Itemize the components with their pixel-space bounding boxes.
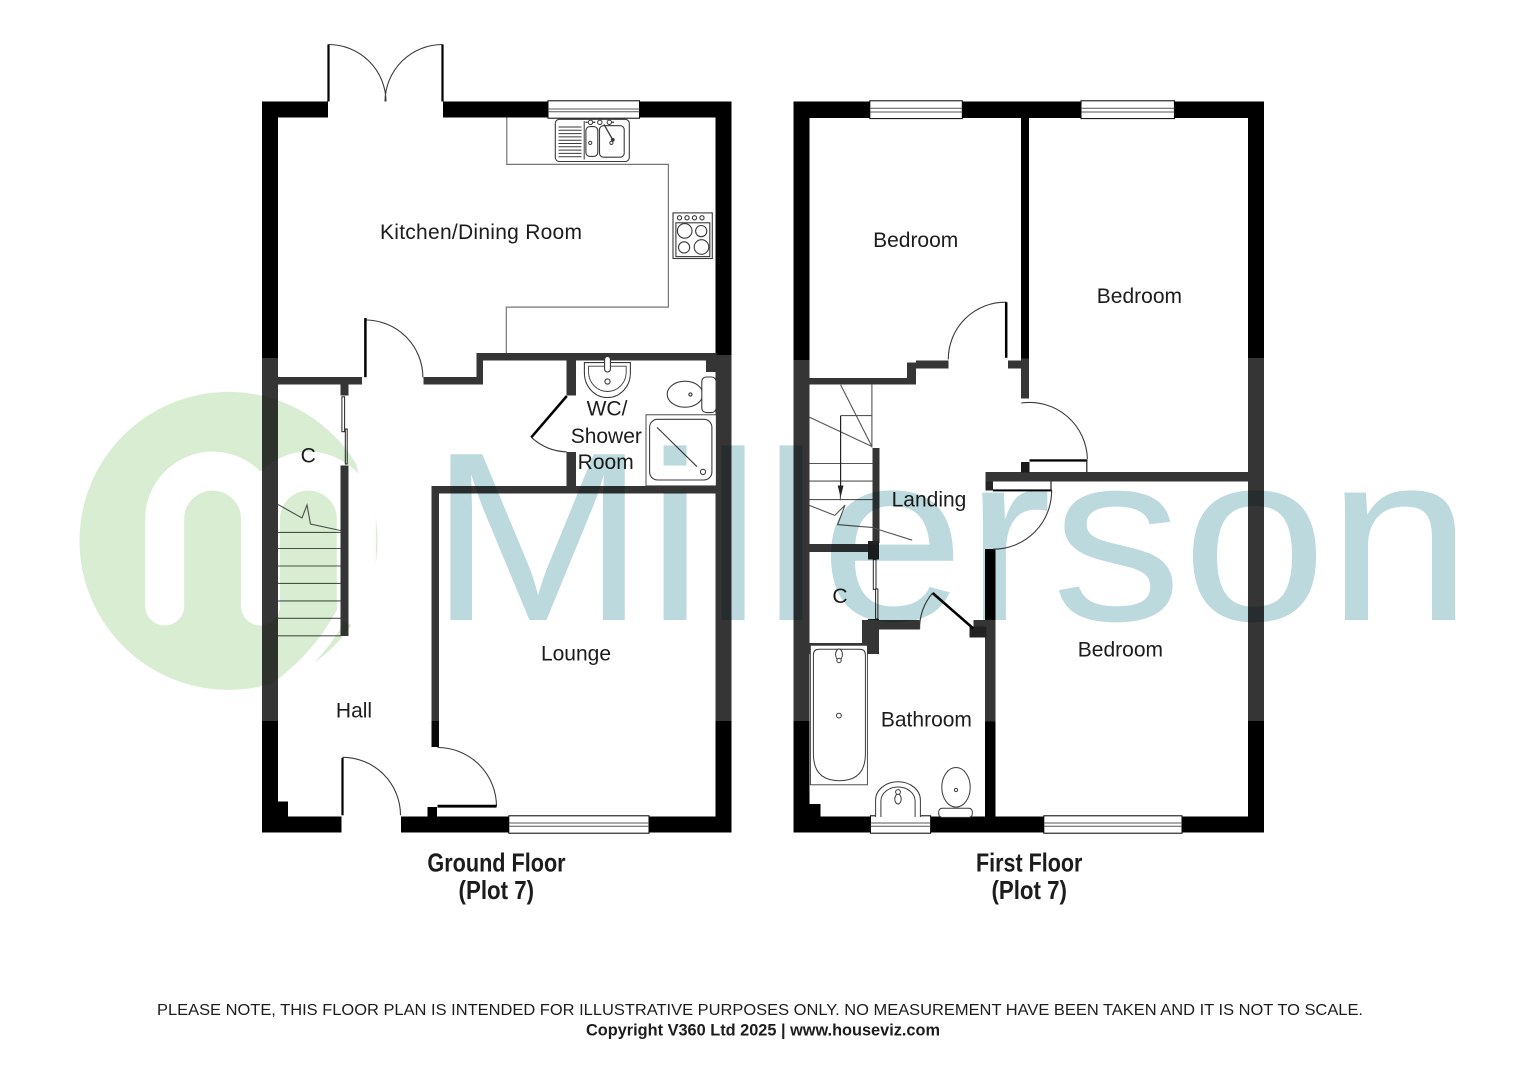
svg-text:PLEASE NOTE, THIS FLOOR PLAN I: PLEASE NOTE, THIS FLOOR PLAN IS INTENDED… xyxy=(157,1002,1363,1019)
svg-text:Bathroom: Bathroom xyxy=(881,709,972,732)
svg-text:Kitchen/Dining Room: Kitchen/Dining Room xyxy=(380,221,582,244)
svg-text:Copyright V360 Ltd 2025 | www.: Copyright V360 Ltd 2025 | www.houseviz.c… xyxy=(586,1021,940,1039)
svg-text:Ground Floor: Ground Floor xyxy=(427,848,565,878)
svg-text:First Floor: First Floor xyxy=(976,847,1082,877)
svg-text:Hall: Hall xyxy=(336,700,372,723)
svg-text:Bedroom: Bedroom xyxy=(873,229,958,252)
svg-text:(Plot 7): (Plot 7) xyxy=(991,875,1067,905)
svg-text:(Plot 7): (Plot 7) xyxy=(459,875,535,905)
svg-text:Millerson: Millerson xyxy=(429,403,1472,672)
svg-text:Bedroom: Bedroom xyxy=(1097,285,1182,308)
